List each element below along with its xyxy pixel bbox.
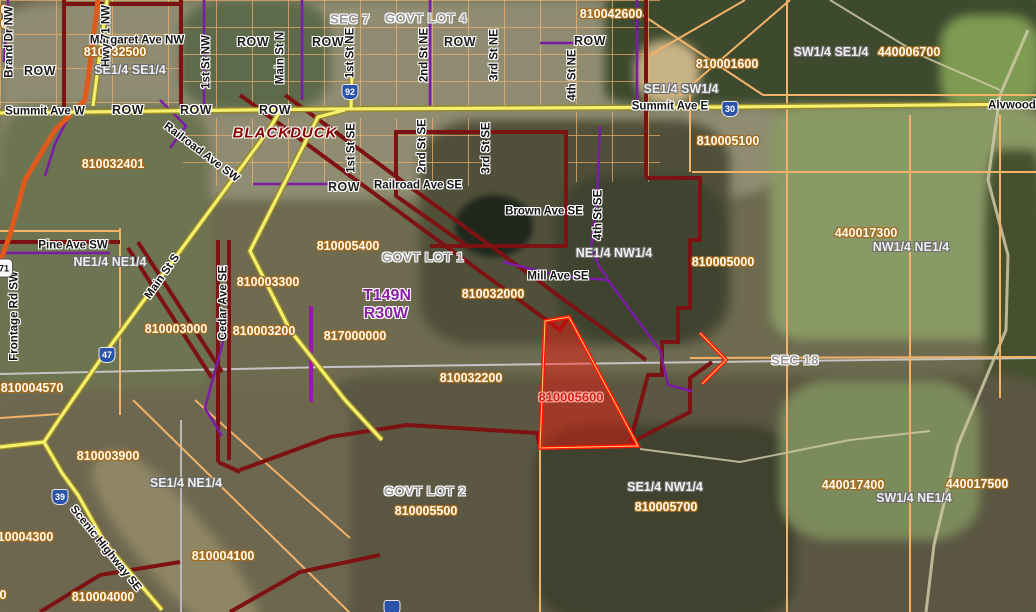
highway-shield-30: 30 — [722, 101, 739, 117]
street-label: 3rd St NE — [489, 29, 501, 81]
street-label: Brown Ave SE — [505, 206, 583, 218]
parcel-label[interactable]: 440017300 — [835, 227, 898, 240]
street-label: Pine Ave SW — [38, 240, 107, 252]
street-label: Summit Ave W — [5, 106, 85, 118]
quarter-label: SE1/4 SW1/4 — [643, 83, 718, 96]
street-label: 3rd St SE — [481, 122, 493, 173]
highlighted-parcel-label[interactable]: 810005600 — [538, 391, 603, 404]
parcel-label[interactable]: 810003200 — [233, 325, 296, 338]
parcel-label[interactable]: 810005700 — [635, 501, 698, 514]
parcel-label[interactable]: 810005000 — [692, 256, 755, 269]
quarter-label: NW1/4 NE1/4 — [873, 241, 949, 254]
parcel-label[interactable]: 810005100 — [697, 135, 760, 148]
parcel-label[interactable]: 810004100 — [192, 550, 255, 563]
parcel-label[interactable]: 810032200 — [440, 372, 503, 385]
quarter-label: NE1/4 NW1/4 — [576, 247, 652, 260]
highway-shield-39: 39 — [52, 489, 69, 505]
highway-shield-71: 71 — [0, 260, 12, 277]
street-label: Alvwood — [988, 100, 1036, 112]
parcel-label[interactable]: 810032500 — [84, 46, 147, 59]
street-label: 4th St SE — [593, 190, 605, 240]
parcel-label[interactable]: 810005400 — [317, 240, 380, 253]
quarter-label: SW1/4 NE1/4 — [876, 492, 952, 505]
street-label: Mill Ave SE — [527, 271, 588, 283]
parcel-label[interactable]: 810032401 — [82, 158, 145, 171]
street-label: Railroad Ave SE — [374, 180, 462, 192]
street-label: Summit Ave E — [632, 101, 708, 113]
quarter-label: SE1/4 NW1/4 — [627, 481, 703, 494]
row-label: ROW — [237, 36, 269, 49]
quarter-label: SE1/4 NE1/4 — [150, 477, 222, 490]
street-label: 1st St SE — [346, 123, 358, 173]
street-label: 4th St NE — [567, 49, 579, 100]
parcel-label[interactable]: 810004000 — [72, 591, 135, 604]
street-label: Brand Dr NW — [4, 6, 16, 78]
township-label-line2: R30W — [364, 306, 408, 322]
row-label: ROW — [574, 35, 606, 48]
parcel-label[interactable]: 810003000 — [145, 323, 208, 336]
parcel-label[interactable]: 0 — [0, 589, 6, 602]
row-label: ROW — [112, 104, 144, 117]
parcel-label[interactable]: 810001600 — [696, 58, 759, 71]
street-label: 1st St NE — [345, 28, 357, 79]
street-label: Hwy 71 NW — [101, 5, 113, 67]
highway-shield-partial — [384, 600, 401, 612]
parcel-label[interactable]: 810005500 — [395, 505, 458, 518]
highway-shield-92: 92 — [342, 84, 359, 100]
parcel-lines-layer — [0, 0, 1036, 612]
section-label: SEC 18 — [771, 354, 819, 367]
parcel-label[interactable]: 810003900 — [77, 450, 140, 463]
highway-shield-47: 47 — [99, 347, 116, 363]
street-label: 1st St NW — [201, 35, 213, 89]
parcel-label[interactable]: 440017400 — [822, 479, 885, 492]
parcel-label[interactable]: 440017500 — [946, 478, 1009, 491]
parcel-label[interactable]: 810004300 — [0, 531, 53, 544]
section-label: GOVT LOT 4 — [385, 12, 467, 25]
parcel-label[interactable]: 817000000 — [324, 330, 387, 343]
parcel-label[interactable]: 810042600 — [580, 8, 643, 21]
row-label: ROW — [180, 104, 212, 117]
parcel-label[interactable]: 810032000 — [462, 288, 525, 301]
row-label: ROW — [24, 65, 56, 78]
quarter-label: NE1/4 NE1/4 — [74, 256, 147, 269]
street-label: 2nd St NE — [419, 28, 431, 82]
street-label: Main St N — [275, 32, 287, 84]
row-label: ROW — [328, 181, 360, 194]
map-line-layers — [0, 0, 1036, 612]
parcel-label[interactable]: 810003300 — [237, 276, 300, 289]
parcel-label[interactable]: 440006700 — [878, 46, 941, 59]
street-label: Frontage Rd SW — [9, 271, 21, 360]
quarter-label: SW1/4 SE1/4 — [793, 46, 868, 59]
row-label: ROW — [444, 36, 476, 49]
map-canvas[interactable]: BLACKDUCK T149N R30W 810005600 810032500… — [0, 0, 1036, 612]
row-label: ROW — [259, 104, 291, 117]
street-label: Cedar Ave SE — [218, 266, 230, 341]
row-label: ROW — [312, 36, 344, 49]
township-label-line1: T149N — [363, 288, 411, 304]
street-label: 2nd St SE — [417, 119, 429, 173]
parcel-label[interactable]: 810004570 — [1, 382, 64, 395]
section-label: GOVT LOT 1 — [382, 251, 464, 264]
city-label: BLACKDUCK — [233, 126, 338, 141]
section-label: GOVT LOT 2 — [384, 485, 466, 498]
section-label: SEC 7 — [330, 13, 370, 26]
